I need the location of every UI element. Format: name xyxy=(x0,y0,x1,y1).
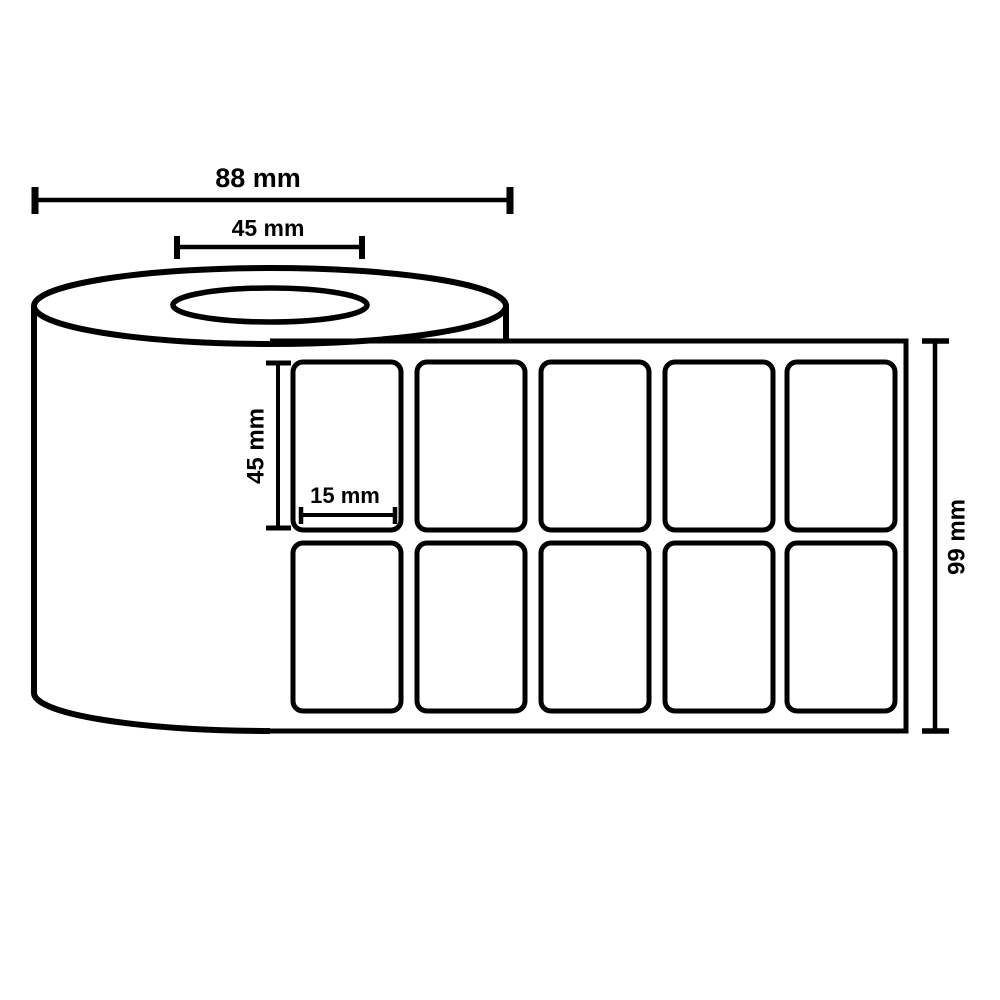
label-strip xyxy=(268,341,906,731)
blank-label xyxy=(293,543,401,711)
dim-strip-height: 99 mm xyxy=(922,341,970,731)
blank-label xyxy=(541,362,649,530)
diagram-canvas: 88 mm 45 mm 45 mm 15 mm 99 m xyxy=(0,0,1000,1000)
roll-bottom-curve xyxy=(34,693,270,731)
dim-label-label-height: 45 mm xyxy=(242,408,269,484)
dim-core-width: 45 mm xyxy=(177,215,362,259)
label-roll-diagram: 88 mm 45 mm 45 mm 15 mm 99 m xyxy=(0,0,1000,1000)
dim-label-label-width: 15 mm xyxy=(310,483,380,508)
dim-label-height: 45 mm xyxy=(242,363,291,528)
blank-label xyxy=(787,362,895,530)
blank-label xyxy=(417,362,525,530)
blank-label xyxy=(541,543,649,711)
dim-label-core-width: 45 mm xyxy=(232,215,305,241)
roll-core-hole xyxy=(173,288,367,322)
dim-label-roll-width: 88 mm xyxy=(215,163,301,193)
labels-grid xyxy=(293,362,895,711)
dim-label-strip-height: 99 mm xyxy=(943,499,970,575)
blank-label xyxy=(787,543,895,711)
blank-label xyxy=(665,543,773,711)
dim-roll-width: 88 mm xyxy=(35,163,510,214)
blank-label xyxy=(417,543,525,711)
blank-label xyxy=(665,362,773,530)
